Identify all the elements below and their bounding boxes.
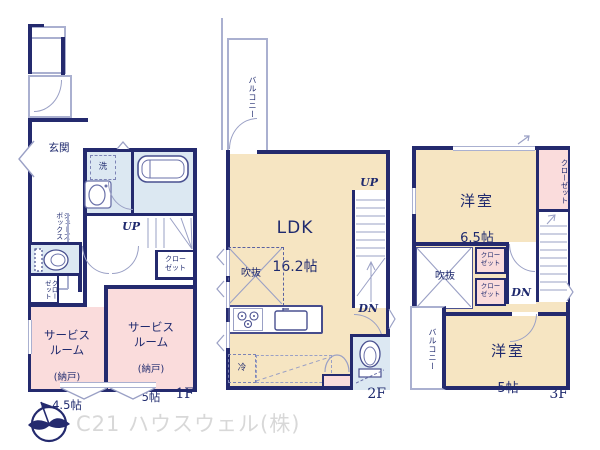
- room-label-bedroom-5: 洋室 5帖: [478, 322, 538, 417]
- room-label-entrance: 玄関: [36, 142, 82, 155]
- closet: クローゼット: [536, 150, 568, 212]
- window-chevron-icon: [388, 308, 397, 330]
- vent-arrow-icon: [516, 134, 532, 146]
- stairs-down-label: DN: [348, 302, 378, 315]
- window-chevron-icon: [566, 282, 575, 302]
- window-chevron-icon: [215, 280, 225, 298]
- door-opening: [230, 150, 257, 154]
- bay-window-icon: [60, 388, 156, 400]
- room-label-void: 吹抜: [420, 271, 470, 284]
- closet: クロー ゼット: [475, 247, 506, 274]
- window: [453, 146, 535, 151]
- window: [226, 250, 230, 276]
- stairs-up-label: UP: [112, 220, 140, 233]
- stairs-icon: [140, 216, 193, 250]
- room-label-balcony: バルコニー: [420, 318, 436, 380]
- closet: クロー ゼット: [475, 278, 506, 306]
- bifold-door-icon: [324, 353, 350, 373]
- window-chevron-icon: [215, 334, 225, 352]
- floor1-label: 1F: [168, 386, 194, 402]
- dashed-diagonal: [256, 355, 332, 383]
- window: [226, 282, 230, 308]
- window: [226, 322, 230, 348]
- stairwell: [352, 190, 386, 308]
- gas-stove-icon: [233, 308, 263, 331]
- wall-segment: [444, 312, 568, 316]
- kitchen-sink-icon: [274, 308, 308, 331]
- window: [412, 188, 416, 214]
- bathtub-icon: [137, 155, 189, 183]
- closet: クロー ゼット: [155, 250, 193, 280]
- floor-plan-sheet: 洗 玄関 シューズ ボックス UP: [0, 0, 600, 450]
- stairs-icon: [355, 190, 386, 308]
- floor2-label: 2F: [360, 386, 386, 402]
- wall-segment: [28, 24, 32, 74]
- stairs-up-label: UP: [348, 176, 378, 189]
- storage-nook: [322, 374, 353, 388]
- laundry-space: 洗: [90, 155, 116, 180]
- fridge-space: 冷: [228, 354, 256, 383]
- floor3-label: 3F: [542, 386, 568, 402]
- window: [28, 320, 32, 354]
- entry-chevron-icon: [16, 140, 36, 178]
- stairs-down-label: DN: [505, 286, 531, 299]
- wall-segment: [61, 37, 65, 75]
- stairs-icon: [539, 212, 568, 302]
- brand-text: C21 ハウスウェル(株): [76, 408, 376, 438]
- north-compass-icon: [24, 397, 72, 445]
- step-line: [32, 37, 62, 39]
- room-label-void: 吹抜: [228, 268, 274, 281]
- toilet-icon: [34, 247, 72, 273]
- stairwell: [536, 212, 568, 302]
- window-chevron-icon: [116, 141, 130, 150]
- wall-line: [221, 18, 223, 150]
- closet: クロー ゼット: [31, 276, 59, 304]
- wall-segment: [416, 242, 506, 246]
- toilet-icon: [356, 340, 384, 384]
- window-chevron-icon: [215, 248, 225, 266]
